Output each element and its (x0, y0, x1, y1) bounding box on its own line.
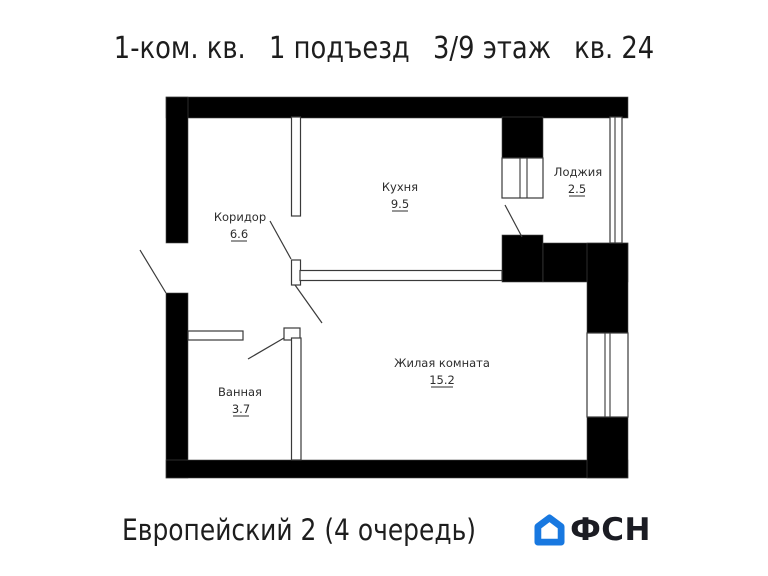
page: 1-ком. кв. 1 подъезд 3/9 этаж кв. 24 (0, 0, 768, 576)
room-label-kitchen: Кухня (382, 180, 418, 194)
door-swing-kitchen (270, 221, 291, 259)
partition-door-stub (292, 260, 301, 285)
logo-text: ФСН (570, 512, 651, 548)
floor-plan: Кухня 9.5 Коридор 6.6 Лоджия 2.5 Жилая к… (0, 0, 768, 576)
door-swing-bathroom (248, 338, 284, 359)
partition-bathroom-living (292, 338, 302, 460)
room-area-bathroom: 3.7 (232, 402, 250, 416)
door-swing-loggia (505, 205, 522, 237)
wall-kitchen-loggia-lower (502, 235, 543, 282)
room-labels: Кухня 9.5 Коридор 6.6 Лоджия 2.5 Жилая к… (214, 165, 602, 416)
living-room-window (587, 333, 628, 417)
room-label-bathroom: Ванная (218, 385, 262, 399)
partition-corridor-kitchen (292, 117, 301, 216)
room-area-loggia: 2.5 (568, 182, 586, 196)
project-name: Европейский 2 (4 очередь) (122, 506, 476, 554)
door-swing-living-room (295, 285, 322, 323)
wall-top (166, 97, 628, 118)
fsn-logo: ФСН (534, 506, 651, 554)
wall-right-lower (587, 417, 628, 478)
wall-kitchen-loggia-upper (502, 117, 543, 158)
room-label-corridor: Коридор (214, 210, 266, 224)
room-label-living-room: Жилая комната (394, 356, 490, 370)
room-label-loggia: Лоджия (554, 165, 602, 179)
wall-right-upper (587, 243, 628, 333)
loggia-glazing (610, 117, 622, 243)
room-area-kitchen: 9.5 (391, 197, 409, 211)
partition-corridor-living (300, 271, 502, 281)
wall-bottom (166, 460, 628, 478)
partition-bathroom-top (188, 331, 243, 340)
wall-left-lower (166, 293, 188, 478)
door-swing-entry (140, 250, 166, 293)
room-area-corridor: 6.6 (230, 227, 248, 241)
kitchen-loggia-window (502, 158, 543, 198)
house-icon (534, 514, 565, 547)
footer: Европейский 2 (4 очередь) ФСН (0, 506, 768, 554)
wall-left-upper (166, 97, 188, 243)
outer-walls (166, 97, 628, 478)
room-area-living-room: 15.2 (429, 373, 455, 387)
